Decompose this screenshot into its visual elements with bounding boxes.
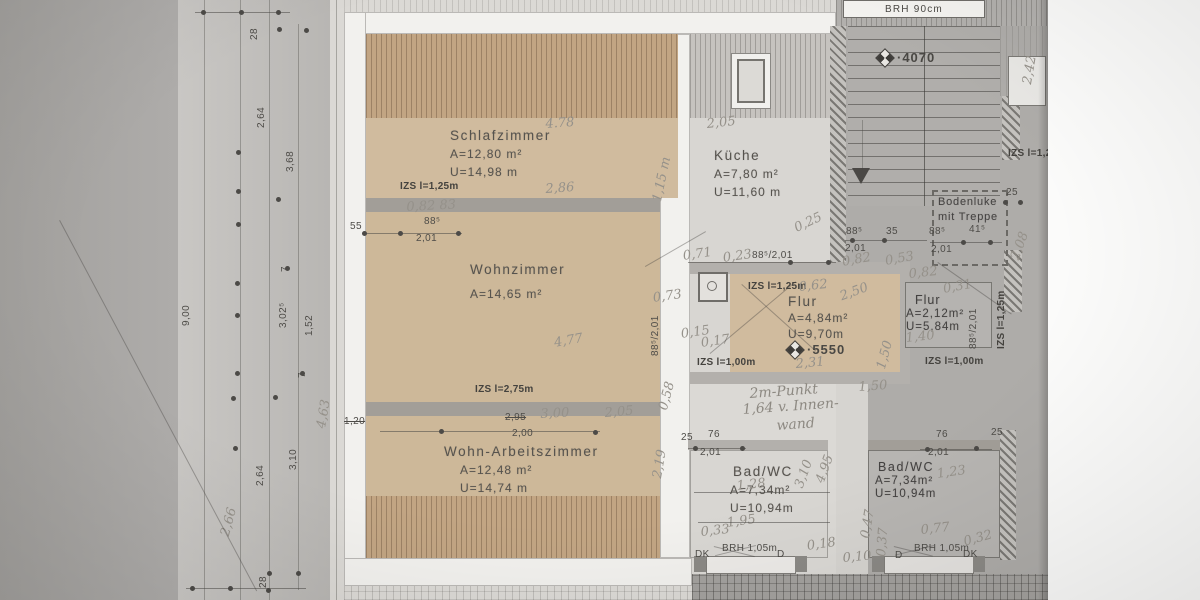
dimension-dot [988,240,993,245]
dimension-dot [235,371,240,376]
dimension-dot [693,446,698,451]
drawing-line [298,24,299,590]
dimension-dot [276,197,281,202]
dimension-dot [228,586,233,591]
dimension-dot [826,260,831,265]
dimension-dot [285,266,290,271]
dimension-dot [456,231,461,236]
dimension-dot [267,571,272,576]
dimension-dot [276,10,281,15]
drawing-line [920,449,992,450]
dimension-dot [201,10,206,15]
dimension-dot [277,27,282,32]
drawing-line [710,281,796,354]
dimension-dot [266,588,271,593]
drawing-line [698,522,830,523]
dimension-dot [439,429,444,434]
drawing-line [694,492,830,493]
drawing-line [336,0,337,600]
white-margin-right [1048,0,1200,600]
drawing-line [362,233,462,234]
dimension-dot [296,571,301,576]
floor-plan-photo: BRH 90cm ·4070 ·5550 Schlafzimmer A=12,8… [0,0,1200,600]
dimension-dot [974,446,979,451]
dimension-dot [398,231,403,236]
dimension-dot [239,10,244,15]
dimension-dot [788,260,793,265]
paper-edge-shadow [1038,0,1048,600]
drawing-line [186,588,306,589]
dimension-dot [362,231,367,236]
drawing-line [240,0,241,600]
dimension-dot [593,430,598,435]
dimension-dot [236,189,241,194]
dimension-dot [961,240,966,245]
dimension-dot [233,446,238,451]
dimension-dot [1003,200,1008,205]
drawing-line [380,431,600,432]
dimension-dot [740,446,745,451]
dimension-dot [236,150,241,155]
dimension-dot [925,447,930,452]
drawing-line [204,0,205,600]
dimension-dot [300,371,305,376]
dimension-dot [231,396,236,401]
drawing-line [269,0,270,600]
drawing-line [862,120,863,170]
dimension-dot [235,281,240,286]
dimension-dot [236,222,241,227]
dimension-dot [235,313,240,318]
dimension-dot [882,238,887,243]
drawing-line [688,262,836,263]
drawing-line [937,262,1011,314]
drawing-line [59,220,257,591]
linework-layer [0,0,1200,600]
dimension-dot [190,586,195,591]
dimension-dot [1018,200,1023,205]
dimension-dot [850,238,855,243]
dimension-dot [273,395,278,400]
dimension-dot [304,28,309,33]
